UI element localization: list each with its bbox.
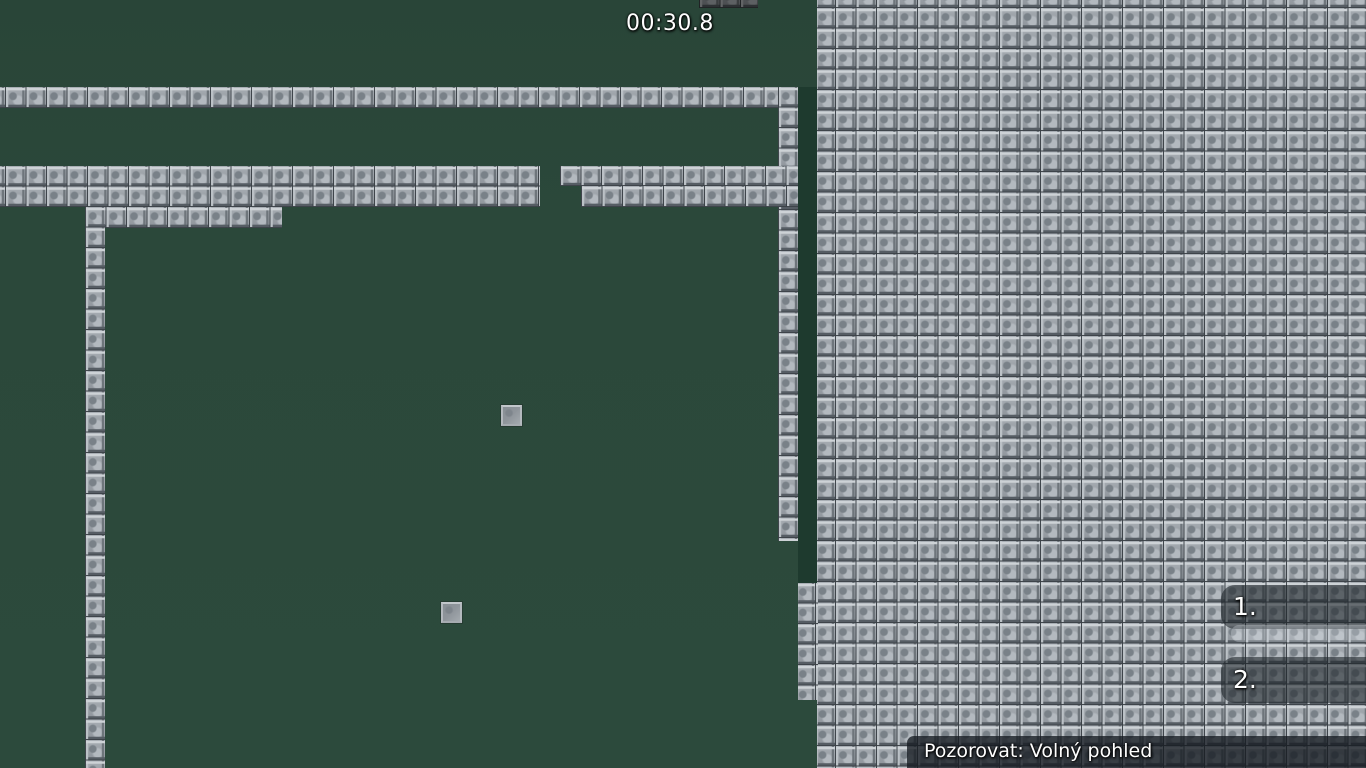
wall-segment bbox=[560, 166, 798, 186]
spectate-status-text: Pozorovat: Volný pohled bbox=[924, 740, 1152, 762]
scoreboard-rank-1: 1. bbox=[1233, 592, 1257, 621]
scoreboard-rank-2: 2. bbox=[1233, 665, 1257, 694]
spectate-status-bar: Pozorovat: Volný pohled bbox=[907, 736, 1366, 768]
wall-segment bbox=[581, 186, 798, 207]
match-timer: 00:30.8 bbox=[626, 11, 714, 36]
wall-segment bbox=[778, 87, 798, 541]
wall-shadow-strip bbox=[798, 87, 818, 583]
wall-segment bbox=[798, 583, 818, 700]
wall-segment bbox=[85, 207, 105, 768]
scoreboard-highlight-band bbox=[1231, 625, 1366, 642]
scoreboard-entry-2: 2. bbox=[1221, 657, 1366, 703]
wall-segment bbox=[0, 166, 540, 207]
item-tile bbox=[501, 405, 522, 426]
game-screen[interactable]: 00:30.8 1. 2. Pozorovat: Volný pohled bbox=[0, 0, 1366, 768]
item-tile bbox=[441, 602, 462, 623]
wall-segment bbox=[0, 87, 798, 108]
wall-segment bbox=[85, 207, 282, 228]
shadowed-wall-segment bbox=[699, 0, 758, 8]
scoreboard-entry-1: 1. bbox=[1221, 585, 1366, 629]
wall-segment bbox=[817, 0, 1366, 768]
